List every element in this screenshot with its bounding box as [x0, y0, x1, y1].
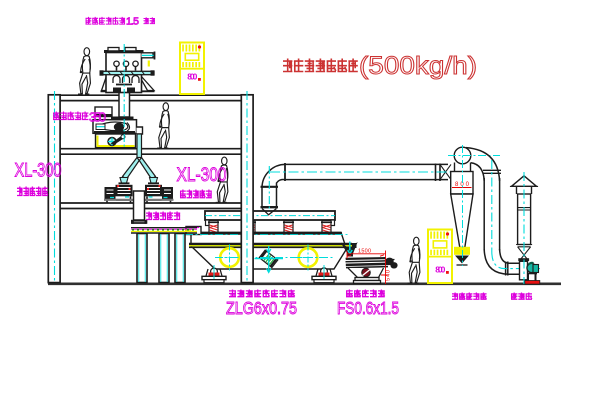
- svg-text:XL-300: XL-300: [177, 164, 227, 186]
- svg-text:XL-300: XL-300: [15, 160, 62, 182]
- svg-text:ZLG6x0.75: ZLG6x0.75: [226, 298, 297, 318]
- svg-text:1500: 1500: [358, 249, 371, 255]
- svg-text:800: 800: [187, 72, 197, 82]
- svg-text:540: 540: [386, 270, 392, 281]
- svg-text:(500kg/h): (500kg/h): [359, 52, 477, 80]
- svg-text:FS0.6x1.5: FS0.6x1.5: [337, 298, 399, 318]
- svg-text:350: 350: [89, 110, 106, 125]
- svg-text:800: 800: [435, 265, 445, 275]
- svg-text:1.5: 1.5: [126, 16, 139, 28]
